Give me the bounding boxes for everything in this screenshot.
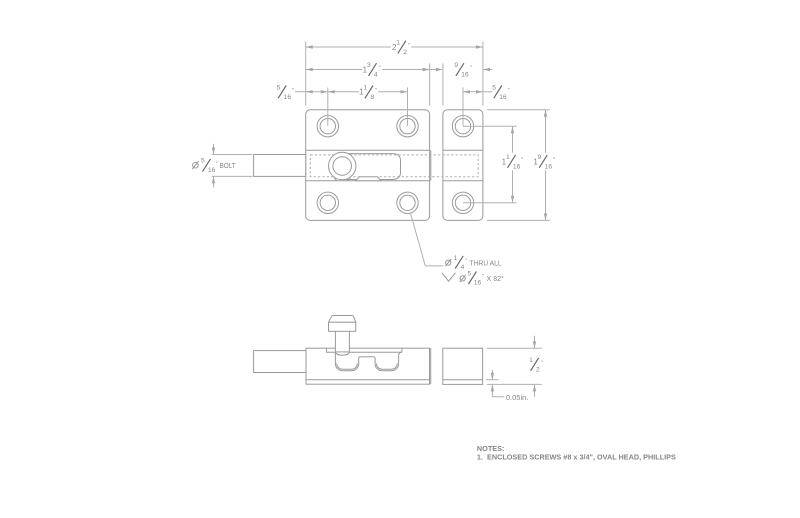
svg-text:1: 1	[506, 154, 510, 161]
svg-text:8: 8	[370, 94, 374, 101]
svg-text:BOLT: BOLT	[220, 161, 237, 170]
svg-text:9: 9	[454, 62, 458, 69]
svg-text:": "	[216, 161, 218, 167]
svg-text:": "	[379, 66, 381, 72]
svg-text:16: 16	[208, 167, 216, 174]
svg-text:4: 4	[374, 72, 378, 79]
svg-text:": "	[408, 43, 410, 49]
svg-text:16: 16	[461, 72, 469, 79]
svg-text:3: 3	[367, 62, 371, 69]
svg-text:5: 5	[492, 84, 496, 91]
svg-text:X 82°: X 82°	[487, 274, 504, 283]
svg-text:": "	[482, 274, 484, 280]
svg-text:0.05in.: 0.05in.	[506, 393, 529, 402]
svg-text:1. ENCLOSED SCREWS #8 x 3/4",: 1. ENCLOSED SCREWS #8 x 3/4", OVAL HEAD,…	[477, 452, 676, 461]
svg-text:2: 2	[536, 366, 540, 373]
svg-text:16: 16	[513, 163, 521, 170]
svg-text:1: 1	[529, 357, 533, 364]
svg-text:5: 5	[201, 158, 205, 165]
svg-text:": "	[470, 66, 472, 72]
svg-text:": "	[553, 158, 555, 164]
svg-text:9: 9	[538, 154, 542, 161]
svg-text:16: 16	[499, 94, 507, 101]
svg-text:16: 16	[545, 163, 553, 170]
svg-text:1: 1	[396, 40, 400, 47]
svg-text:": "	[375, 88, 377, 94]
svg-text:1: 1	[454, 255, 458, 262]
svg-text:": "	[465, 258, 467, 264]
svg-text:1: 1	[363, 84, 367, 91]
svg-text:4: 4	[461, 264, 465, 271]
svg-text:": "	[521, 158, 523, 164]
svg-text:THRU ALL: THRU ALL	[469, 259, 501, 268]
svg-text:5: 5	[468, 271, 472, 278]
svg-text:": "	[292, 88, 294, 94]
svg-text:": "	[541, 361, 543, 367]
svg-text:16: 16	[474, 280, 482, 287]
svg-text:": "	[508, 88, 510, 94]
svg-text:5: 5	[277, 84, 281, 91]
svg-text:16: 16	[284, 94, 292, 101]
svg-text:2: 2	[403, 49, 407, 56]
